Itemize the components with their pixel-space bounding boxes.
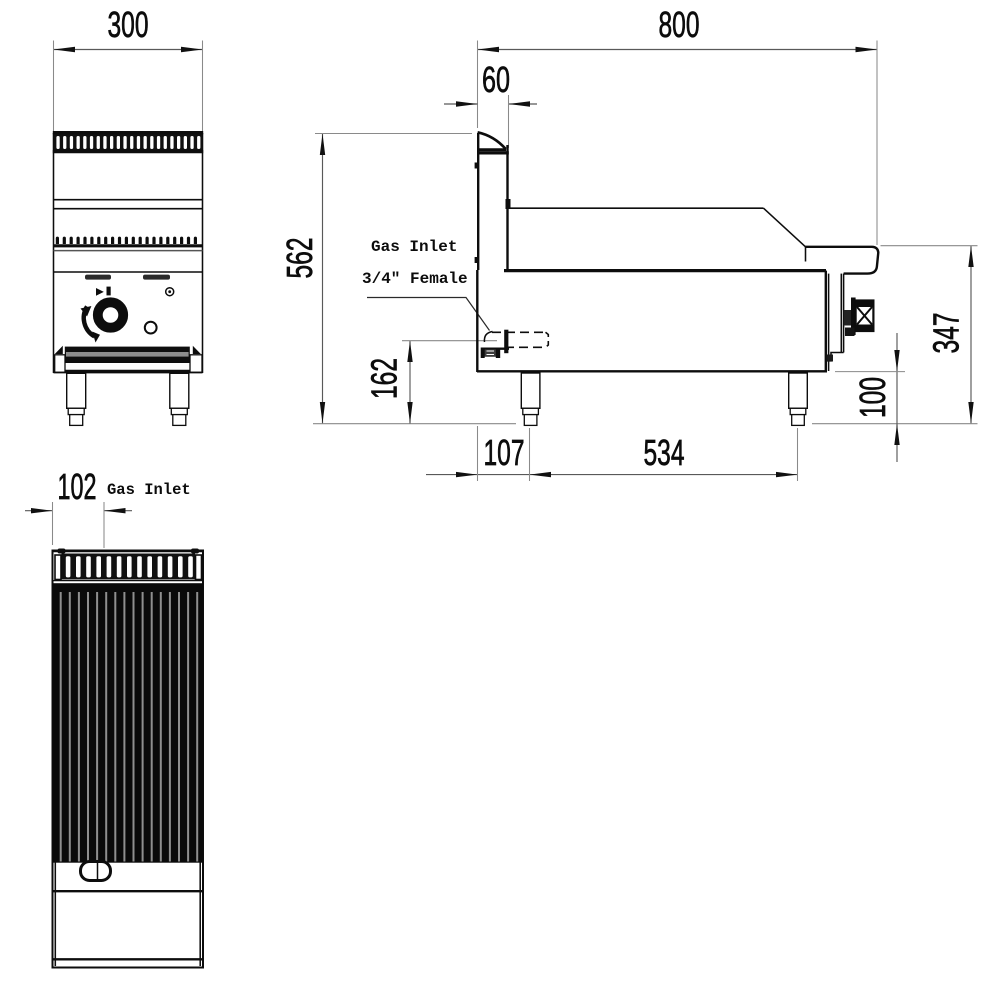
svg-text:102: 102 [58,466,97,507]
svg-text:107: 107 [484,432,525,473]
svg-text:60: 60 [482,59,510,100]
svg-text:Gas Inlet: Gas Inlet [371,238,457,256]
svg-text:534: 534 [644,432,685,473]
svg-text:800: 800 [659,4,700,45]
svg-text:3/4" Female: 3/4" Female [362,270,468,288]
svg-text:100: 100 [852,377,893,418]
svg-text:300: 300 [108,4,149,45]
svg-text:347: 347 [926,313,967,354]
svg-text:162: 162 [364,358,405,399]
svg-text:Gas Inlet: Gas Inlet [107,481,191,499]
svg-text:562: 562 [279,238,320,279]
